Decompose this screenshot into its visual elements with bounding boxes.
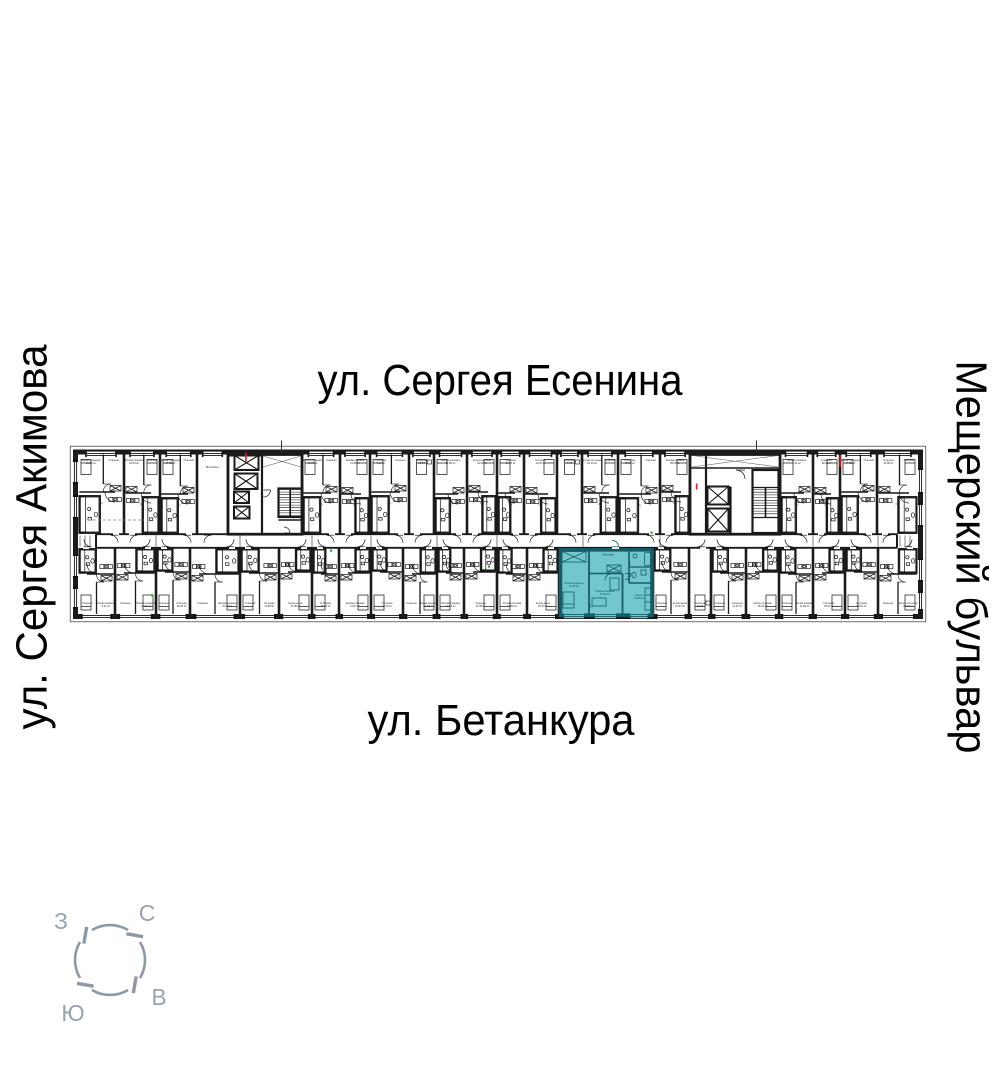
svg-text:16.24 м²: 16.24 м² (506, 461, 516, 465)
svg-text:18.33 м²: 18.33 м² (129, 461, 139, 465)
svg-text:25.06 м²: 25.06 м² (824, 604, 834, 608)
svg-text:Спальня: Спальня (120, 601, 131, 605)
svg-text:12.97 м²: 12.97 м² (350, 604, 360, 608)
svg-text:12.97 м²: 12.97 м² (732, 604, 742, 608)
svg-text:20.15 м²: 20.15 м² (903, 604, 913, 608)
svg-text:Спальня: Спальня (183, 458, 194, 462)
svg-text:ул. Бетанкура: ул. Бетанкура (368, 696, 635, 745)
svg-text:11.80 м²: 11.80 м² (264, 604, 274, 608)
svg-text:20.15 м²: 20.15 м² (587, 461, 597, 465)
svg-text:Спальня: Спальня (245, 601, 256, 605)
svg-text:Спальня: Спальня (645, 458, 656, 462)
svg-text:14.16 м²: 14.16 м² (569, 584, 579, 588)
svg-text:В: В (151, 984, 166, 1010)
svg-text:11.80 м²: 11.80 м² (86, 461, 96, 465)
svg-text:11.42 м²: 11.42 м² (600, 592, 610, 596)
svg-text:9.41 м²: 9.41 м² (102, 604, 111, 608)
svg-text:11.80 м²: 11.80 м² (291, 604, 301, 608)
svg-text:Спальня: Спальня (883, 601, 894, 605)
svg-text:Ю: Ю (61, 1000, 84, 1026)
svg-text:Спальня: Спальня (395, 458, 406, 462)
svg-text:Спальня: Спальня (326, 458, 337, 462)
svg-text:18.33 м²: 18.33 м² (822, 461, 832, 465)
svg-text:Спальня: Спальня (147, 458, 158, 462)
svg-text:З: З (54, 908, 68, 934)
svg-text:14.52 м²: 14.52 м² (165, 461, 175, 465)
svg-text:14.52 м²: 14.52 м² (382, 604, 392, 608)
svg-text:14.52 м²: 14.52 м² (845, 461, 855, 465)
svg-text:11.80 м²: 11.80 м² (507, 604, 517, 608)
svg-text:ул. Сергея Акимова: ул. Сергея Акимова (8, 344, 57, 729)
svg-text:18.33 м²: 18.33 м² (758, 604, 768, 608)
svg-text:ул. Сергея Есенина: ул. Сергея Есенина (318, 356, 683, 405)
svg-text:18.33 м²: 18.33 м² (177, 604, 187, 608)
svg-text:Спальня: Спальня (108, 458, 119, 462)
svg-text:Спальня: Спальня (605, 458, 616, 462)
svg-text:11.80 м²: 11.80 м² (308, 461, 318, 465)
svg-text:Прихожая: Прихожая (602, 553, 615, 557)
svg-text:11.80 м²: 11.80 м² (884, 461, 894, 465)
svg-text:12.97 м²: 12.97 м² (675, 604, 685, 608)
svg-text:Спальня: Спальня (406, 601, 417, 605)
svg-text:Спальня: Спальня (863, 458, 874, 462)
svg-text:Спальня: Спальня (197, 601, 208, 605)
svg-text:11.80 м²: 11.80 м² (350, 461, 360, 465)
svg-text:9.41 м²: 9.41 м² (792, 461, 801, 465)
svg-text:Вестибюль: Вестибюль (206, 465, 220, 469)
svg-text:Спальня: Спальня (82, 601, 93, 605)
svg-text:14.52 м²: 14.52 м² (477, 461, 487, 465)
svg-text:18.33 м²: 18.33 м² (321, 604, 331, 608)
svg-text:9.41 м²: 9.41 м² (377, 461, 386, 465)
svg-text:11.80 м²: 11.80 м² (476, 604, 486, 608)
svg-text:20.15 м²: 20.15 м² (223, 604, 233, 608)
svg-text:18.33 м²: 18.33 м² (538, 604, 548, 608)
svg-text:11.80 м²: 11.80 м² (446, 461, 456, 465)
svg-text:Мещерский бульвар: Мещерский бульвар (947, 361, 996, 754)
svg-text:11.80 м²: 11.80 м² (800, 604, 810, 608)
svg-text:14.52 м²: 14.52 м² (446, 604, 456, 608)
svg-text:11.80 м²: 11.80 м² (424, 604, 434, 608)
svg-text:25.06 м²: 25.06 м² (670, 461, 680, 465)
svg-text:13.85 м²: 13.85 м² (634, 596, 644, 600)
svg-text:12.97 м²: 12.97 м² (141, 604, 151, 608)
svg-text:14.52 м²: 14.52 м² (536, 461, 546, 465)
svg-text:18.33 м²: 18.33 м² (625, 461, 635, 465)
svg-text:14.52 м²: 14.52 м² (857, 604, 867, 608)
svg-text:С: С (139, 900, 156, 926)
